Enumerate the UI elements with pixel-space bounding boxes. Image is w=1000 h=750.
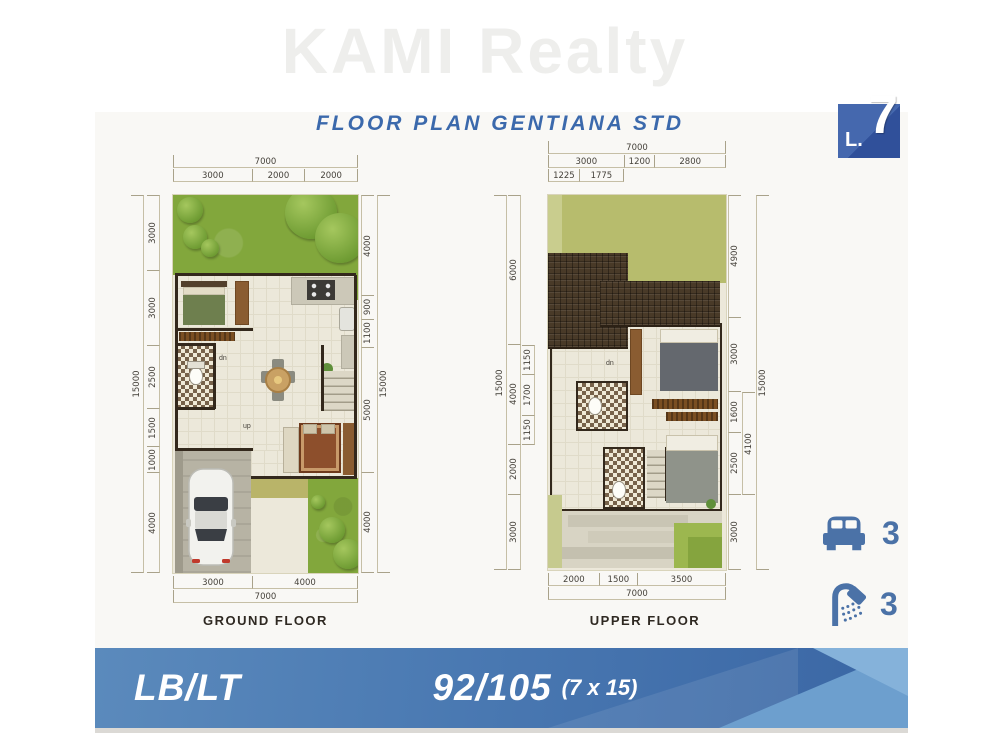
dim-segment: 7000 [548, 587, 726, 600]
wall [213, 343, 216, 409]
dim-segment: 2500 [728, 432, 741, 495]
footer-size: 92/105 (7 x 15) [385, 648, 685, 728]
uf-dim-right-total: 15000 [756, 195, 769, 570]
tree [315, 213, 358, 263]
tree [177, 197, 203, 223]
gf-dim-left-total: 15000 [131, 195, 144, 573]
footer-size-note: (7 x 15) [562, 675, 638, 701]
ground-floor-label: GROUND FLOOR [173, 613, 358, 628]
car-top-view [186, 467, 236, 567]
lot-badge-prefix: L. [845, 129, 863, 152]
wall [175, 407, 215, 410]
dim-segment: 3000 [548, 155, 624, 168]
bathroom-feature: 3 [828, 582, 898, 626]
page-edge-shadow [95, 728, 908, 733]
dim-segment: 1700 [522, 374, 535, 416]
dim-segment: 5000 [361, 347, 374, 472]
dim-segment: 1100 [361, 319, 374, 347]
uf-bed2-blanket [666, 451, 718, 503]
dim-segment: 4000 [508, 344, 521, 444]
uf-stairs [647, 450, 665, 498]
watermark-logo: KAMI Realty [95, 14, 875, 88]
dim-segment: 2000 [252, 169, 305, 182]
ground-floor-plan: dn up [173, 195, 358, 573]
gf-dim-left: 300030002500150010004000 [147, 195, 160, 573]
dim-segment: 3000 [173, 169, 252, 182]
gf-dim-right: 4000900110050004000 [361, 195, 374, 573]
dim-segment: 4000 [361, 472, 374, 573]
gf-bookshelf [179, 332, 235, 341]
dim-segment: 4000 [147, 472, 160, 573]
gf-dim-right-total: 15000 [377, 195, 390, 573]
dim-segment: 3000 [147, 195, 160, 270]
uf-roof-right [600, 281, 720, 327]
gf-dim-bottom-total: 7000 [173, 590, 358, 603]
dim-segment: 4000 [361, 195, 374, 295]
bed-icon [820, 512, 868, 554]
uf-toilet2 [612, 481, 626, 499]
wall [175, 273, 178, 450]
bedroom-count: 3 [882, 515, 900, 552]
uf-bookshelf [652, 399, 718, 409]
page-title: FLOOR PLAN GENTIANA STD [105, 112, 895, 136]
uf-plant [706, 499, 716, 509]
gf-up-label: up [243, 423, 251, 430]
dim-segment: 3000 [173, 576, 252, 589]
uf-dim-right-mid: 4100 [742, 392, 755, 495]
upper-floor-plan: dn [548, 195, 726, 570]
uf-dim-right: 49003000160025003000 [728, 195, 741, 570]
dim-segment: 2500 [147, 345, 160, 408]
uf-dim-top-inner: 12251775 [548, 169, 624, 182]
uf-dim-left-inner: 115017001150 [522, 345, 535, 445]
uf-wardrobe [630, 329, 642, 395]
dim-segment: 7000 [173, 590, 358, 603]
uf-dim-left: 6000400020003000 [508, 195, 521, 570]
dim-segment: 3000 [728, 494, 741, 570]
uf-bathroom2-tiles [603, 447, 645, 509]
uf-dim-top-total: 7000 [548, 141, 726, 154]
dim-segment: 3000 [508, 494, 521, 570]
wall [175, 448, 253, 451]
dim-segment: 4900 [728, 195, 741, 317]
dim-segment: 7000 [548, 141, 726, 154]
dim-segment: 2800 [654, 155, 726, 168]
gf-terrace [251, 478, 308, 498]
uf-roof-step [558, 547, 678, 559]
tree [201, 239, 219, 257]
uf-bed1-pillows [660, 329, 718, 343]
gf-stove [307, 280, 335, 300]
gf-stairs [324, 371, 356, 411]
gf-bed-pillows [183, 287, 225, 295]
bathroom-count: 3 [880, 586, 898, 623]
uf-toilet1 [588, 397, 602, 415]
uf-dim-top: 300012002800 [548, 155, 726, 168]
bush [333, 539, 358, 569]
wall [251, 476, 357, 479]
bush [311, 495, 325, 509]
uf-dim-left-total: 15000 [494, 195, 507, 570]
dim-segment: 15000 [756, 195, 769, 570]
gf-toilet [189, 367, 203, 385]
footer-lblt: LB/LT [95, 648, 280, 728]
gf-sofa [283, 427, 299, 473]
uf-down-label: dn [606, 360, 614, 367]
dim-segment: 1000 [147, 446, 160, 472]
dim-segment: 1150 [522, 415, 535, 445]
shower-icon [828, 582, 866, 626]
dim-segment: 1500 [599, 573, 637, 586]
dim-segment: 1150 [522, 345, 535, 374]
uf-side-strip [548, 495, 562, 568]
wall [354, 275, 357, 478]
gf-down-label: dn [219, 355, 227, 362]
lot-badge: L. 7 [838, 104, 900, 158]
wall [175, 273, 356, 276]
uf-bed1-blanket [660, 343, 718, 391]
dim-segment: 4000 [252, 576, 358, 589]
dim-segment: 3000 [728, 317, 741, 392]
wall [175, 328, 253, 331]
dim-segment: 1200 [624, 155, 655, 168]
gf-carport-edge [175, 450, 183, 573]
dim-segment: 2000 [508, 444, 521, 494]
uf-roof-step [568, 515, 688, 527]
dim-segment: 1500 [147, 408, 160, 446]
dim-segment: 1600 [728, 391, 741, 431]
gf-cushion [321, 424, 335, 434]
wall [175, 343, 213, 346]
gf-cushion [303, 424, 317, 434]
dim-segment: 900 [361, 295, 374, 318]
brochure-page: KAMI Realty FLOOR PLAN GENTIANA STD L. 7… [0, 0, 1000, 750]
gf-dim-top-total: 7000 [173, 155, 358, 168]
bush [319, 517, 345, 543]
gf-bed-blanket [183, 295, 225, 325]
gf-dim-bottom: 30004000 [173, 576, 358, 589]
gf-toilet-tank [187, 361, 205, 369]
gf-dim-top: 300020002000 [173, 169, 358, 182]
dim-segment: 3000 [147, 270, 160, 345]
gf-sink [339, 307, 355, 331]
dim-segment: 2000 [304, 169, 358, 182]
dim-segment: 1775 [579, 169, 624, 182]
wall [321, 345, 324, 411]
uf-bathroom1-tiles [576, 381, 628, 431]
uf-dim-bottom-total: 7000 [548, 587, 726, 600]
lot-badge-number: 7 [868, 88, 898, 142]
gf-wardrobe [235, 281, 249, 325]
gf-table-center [274, 376, 282, 384]
dim-segment: 15000 [494, 195, 507, 570]
uf-bookshelf [666, 412, 718, 421]
dim-segment: 4100 [742, 392, 755, 495]
dim-segment: 15000 [131, 195, 144, 573]
dim-segment: 3500 [637, 573, 726, 586]
dim-segment: 6000 [508, 195, 521, 344]
uf-dim-bottom: 200015003500 [548, 573, 726, 586]
uf-bed2-pillows [666, 435, 718, 451]
uf-rear-garden-inner [688, 537, 722, 568]
upper-floor-label: UPPER FLOOR [556, 613, 734, 628]
footer-size-value: 92/105 [433, 667, 552, 709]
bedroom-feature: 3 [820, 512, 900, 554]
dim-segment: 7000 [173, 155, 358, 168]
dim-segment: 15000 [377, 195, 390, 573]
dim-segment: 1225 [548, 169, 579, 182]
dim-segment: 2000 [548, 573, 599, 586]
